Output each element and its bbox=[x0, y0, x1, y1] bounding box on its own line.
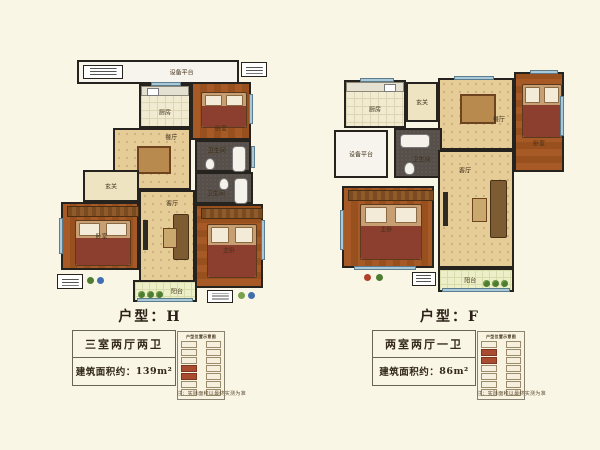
unit-cell bbox=[481, 373, 497, 380]
decor-icon bbox=[97, 277, 104, 284]
bed bbox=[201, 92, 247, 128]
plan-title-H: 户型：H bbox=[75, 306, 225, 326]
coffee-table bbox=[163, 228, 177, 248]
entry-hall: 玄关 bbox=[406, 82, 438, 122]
window bbox=[442, 288, 510, 292]
corridor bbox=[198, 341, 205, 346]
floorplan-F: 厨房 玄关 餐厅 卧室 设备平台 bbox=[330, 60, 566, 292]
sink bbox=[384, 84, 396, 92]
room-label: 厨房 bbox=[159, 108, 171, 117]
master-bedroom: 主卧 bbox=[342, 186, 434, 268]
unit-cell bbox=[506, 365, 522, 372]
info-box-F: 两室两厅一卫 建筑面积约：86m² bbox=[372, 330, 476, 386]
unit-cell bbox=[181, 341, 197, 348]
window bbox=[249, 94, 253, 124]
corridor bbox=[198, 381, 205, 386]
key-plate-grid bbox=[181, 341, 221, 396]
unit-cell bbox=[206, 381, 222, 388]
unit-cell bbox=[206, 341, 222, 348]
kitchen: 厨房 bbox=[344, 80, 406, 128]
toilet bbox=[205, 158, 215, 170]
floorplan-H: 设备平台 厨房 卧室 餐厅 玄关 bbox=[55, 58, 307, 304]
room-label: 餐厅 bbox=[165, 132, 177, 141]
room-label: 主卧 bbox=[223, 246, 235, 255]
key-plate-grid bbox=[481, 341, 521, 396]
room-label: 客厅 bbox=[166, 198, 178, 207]
area-row: 建筑面积约：139m² bbox=[73, 358, 175, 384]
corridor bbox=[498, 357, 505, 362]
corridor bbox=[498, 373, 505, 378]
pillow bbox=[365, 207, 387, 223]
kitchen: 厨房 bbox=[139, 84, 191, 128]
bathtub bbox=[400, 134, 430, 148]
pillow bbox=[395, 207, 417, 223]
bedroom-left: 卧室 bbox=[61, 202, 139, 270]
layout-spec: 三室两厅两卫 bbox=[73, 331, 175, 358]
unit-cell bbox=[206, 357, 222, 364]
pillow bbox=[106, 223, 126, 236]
room-label: 卧室 bbox=[215, 124, 227, 133]
window bbox=[530, 70, 558, 74]
area-row: 建筑面积约：86m² bbox=[373, 358, 475, 384]
corridor bbox=[498, 381, 505, 386]
blanket bbox=[523, 105, 561, 137]
corridor bbox=[498, 341, 505, 346]
unit-cell bbox=[181, 357, 197, 364]
unit-cell bbox=[506, 341, 522, 348]
corridor bbox=[498, 365, 505, 370]
bedroom-top: 卧室 bbox=[191, 82, 251, 140]
area-value: 86m² bbox=[439, 366, 468, 377]
wardrobe bbox=[201, 208, 263, 219]
bathroom: 卫生间 bbox=[394, 128, 442, 178]
room-label: 卧室 bbox=[95, 232, 107, 241]
room-label: 厨房 bbox=[369, 105, 381, 114]
bathroom-lower: 卫生间 bbox=[195, 172, 253, 204]
disclaimer-note: 注：实际面积以最终实测为准 bbox=[177, 390, 246, 397]
window bbox=[560, 96, 564, 136]
corridor bbox=[198, 373, 205, 378]
pillow bbox=[205, 95, 222, 106]
window bbox=[59, 218, 63, 254]
room-label: 玄关 bbox=[416, 98, 428, 107]
unit-cell bbox=[481, 365, 497, 372]
bathtub bbox=[234, 178, 248, 204]
corridor bbox=[498, 349, 505, 354]
unit-cell bbox=[181, 349, 197, 356]
bed bbox=[75, 220, 131, 266]
bathroom-upper: 卫生间 bbox=[195, 140, 251, 172]
living-room: 客厅 bbox=[438, 150, 514, 268]
window bbox=[354, 266, 416, 270]
pillow bbox=[525, 87, 540, 103]
unit-cell bbox=[206, 349, 222, 356]
pillow bbox=[211, 227, 229, 243]
unit-cell bbox=[206, 365, 222, 372]
decor-icon bbox=[248, 292, 255, 299]
living-room: 客厅 bbox=[139, 190, 195, 284]
window bbox=[340, 210, 344, 250]
plant-icon bbox=[376, 274, 383, 281]
bedroom: 卧室 bbox=[514, 72, 564, 172]
layout-spec: 两室两厅一卫 bbox=[373, 331, 475, 358]
toilet bbox=[404, 162, 415, 175]
plan-title-F: 户型：F bbox=[375, 306, 525, 326]
window bbox=[251, 146, 255, 168]
dining-room: 餐厅 bbox=[438, 78, 514, 150]
unit-cell bbox=[181, 373, 197, 380]
sofa bbox=[490, 180, 507, 238]
ac-unit-icon bbox=[241, 62, 267, 77]
floorplan-flyer: 设备平台 厨房 卧室 餐厅 玄关 bbox=[0, 0, 600, 450]
window bbox=[151, 82, 181, 86]
tv-cabinet bbox=[443, 192, 448, 226]
unit-cell bbox=[481, 357, 497, 364]
corridor bbox=[198, 349, 205, 354]
wardrobe bbox=[67, 206, 139, 217]
blanket bbox=[76, 238, 130, 265]
dining-table bbox=[137, 146, 171, 174]
window bbox=[137, 298, 193, 302]
unit-cell bbox=[181, 365, 197, 372]
pillow bbox=[235, 227, 253, 243]
plant-icon bbox=[87, 277, 94, 284]
area-label: 建筑面积约： bbox=[379, 364, 439, 378]
room-label: 玄关 bbox=[105, 182, 117, 191]
unit-cell bbox=[506, 349, 522, 356]
room-label: 卫生间 bbox=[413, 154, 431, 163]
plants bbox=[483, 280, 508, 287]
master-bedroom: 主卧 bbox=[195, 204, 263, 288]
ac-unit-icon bbox=[412, 272, 436, 286]
window bbox=[454, 76, 494, 80]
unit-cell bbox=[481, 349, 497, 356]
ac-unit-icon bbox=[83, 65, 123, 79]
ac-unit-icon bbox=[207, 290, 233, 303]
corridor bbox=[198, 357, 205, 362]
room-label: 阳台 bbox=[464, 276, 476, 285]
room-label: 卫生间 bbox=[207, 189, 225, 198]
unit-cell bbox=[481, 381, 497, 388]
entry-hall: 玄关 bbox=[83, 170, 139, 202]
bed bbox=[522, 84, 562, 138]
area-value: 139m² bbox=[136, 366, 173, 377]
info-box-H: 三室两厅两卫 建筑面积约：139m² bbox=[72, 330, 176, 386]
room-label: 卫生间 bbox=[208, 146, 226, 155]
pillow bbox=[226, 95, 243, 106]
equipment-platform: 设备平台 bbox=[334, 130, 388, 178]
area-label: 建筑面积约： bbox=[76, 364, 136, 378]
room-label: 餐厅 bbox=[493, 115, 505, 124]
room-label: 设备平台 bbox=[349, 150, 373, 159]
plants bbox=[138, 291, 163, 298]
room-label: 设备平台 bbox=[170, 68, 194, 77]
unit-cell bbox=[506, 381, 522, 388]
sink bbox=[147, 88, 159, 96]
equipment-platform: 设备平台 bbox=[77, 60, 239, 84]
decor-icon bbox=[364, 274, 371, 281]
room-label: 卧室 bbox=[533, 139, 545, 148]
disclaimer-note: 注：实际面积以最终实测为准 bbox=[477, 390, 546, 397]
wardrobe bbox=[348, 190, 434, 201]
room-label: 阳台 bbox=[171, 287, 183, 296]
dining-table bbox=[460, 94, 496, 124]
window bbox=[360, 78, 394, 82]
key-plate-caption: 户型位置示意图 bbox=[481, 334, 521, 340]
tv-cabinet bbox=[143, 220, 148, 250]
unit-cell bbox=[506, 357, 522, 364]
corridor bbox=[198, 365, 205, 370]
ac-unit-icon bbox=[57, 274, 83, 289]
key-plate-caption: 户型位置示意图 bbox=[181, 334, 221, 340]
window bbox=[261, 220, 265, 260]
plant-icon bbox=[238, 292, 245, 299]
unit-cell bbox=[206, 373, 222, 380]
coffee-table bbox=[472, 198, 487, 222]
room-label: 主卧 bbox=[380, 224, 392, 233]
bathtub bbox=[232, 146, 246, 172]
unit-cell bbox=[181, 381, 197, 388]
unit-cell bbox=[506, 373, 522, 380]
unit-cell bbox=[481, 341, 497, 348]
room-label: 客厅 bbox=[459, 166, 471, 175]
pillow bbox=[544, 87, 559, 103]
